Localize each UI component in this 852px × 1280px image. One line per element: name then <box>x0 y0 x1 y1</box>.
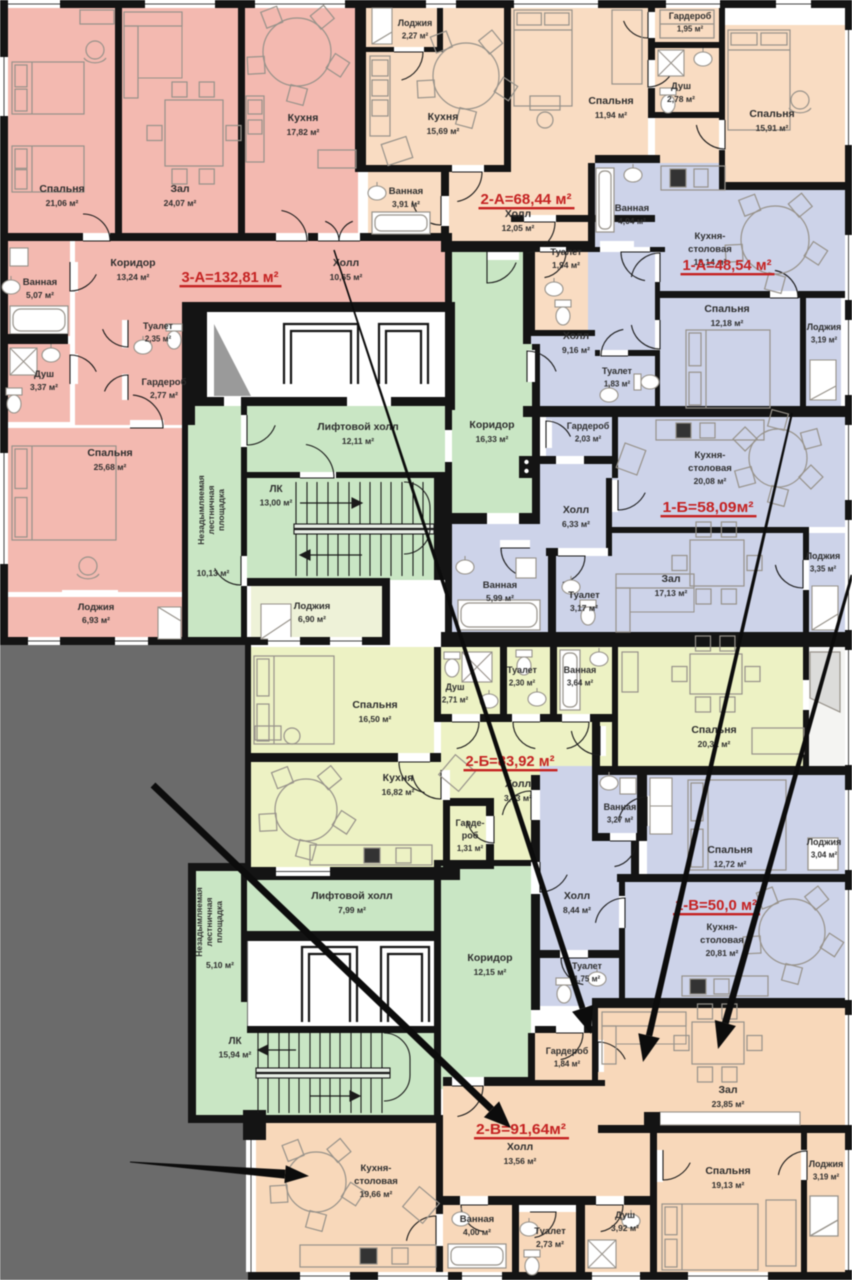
svg-text:2-В=91,64м²: 2-В=91,64м² <box>476 1121 566 1138</box>
svg-text:1-В=50,0 м²: 1-В=50,0 м² <box>675 897 757 914</box>
svg-text:2-Б=83,92 м²: 2-Б=83,92 м² <box>466 753 555 770</box>
svg-text:2-А=68,44 м²: 2-А=68,44 м² <box>481 191 572 208</box>
svg-text:1-А=48,54 м²: 1-А=48,54 м² <box>683 257 772 274</box>
svg-text:3-А=132,81 м²: 3-А=132,81 м² <box>182 269 279 286</box>
svg-text:Кухня-столовая20,08 м²: Кухня-столовая20,08 м² <box>688 450 732 486</box>
svg-text:10,13 м²: 10,13 м² <box>197 568 230 578</box>
svg-text:1-Б=58,09м²: 1-Б=58,09м² <box>663 499 754 516</box>
svg-text:Кухня-столовая20,81 м²: Кухня-столовая20,81 м² <box>700 922 744 958</box>
svg-text:5,10 м²: 5,10 м² <box>206 960 234 970</box>
svg-text:Кухня-столовая19,66 м²: Кухня-столовая19,66 м² <box>354 1163 398 1199</box>
